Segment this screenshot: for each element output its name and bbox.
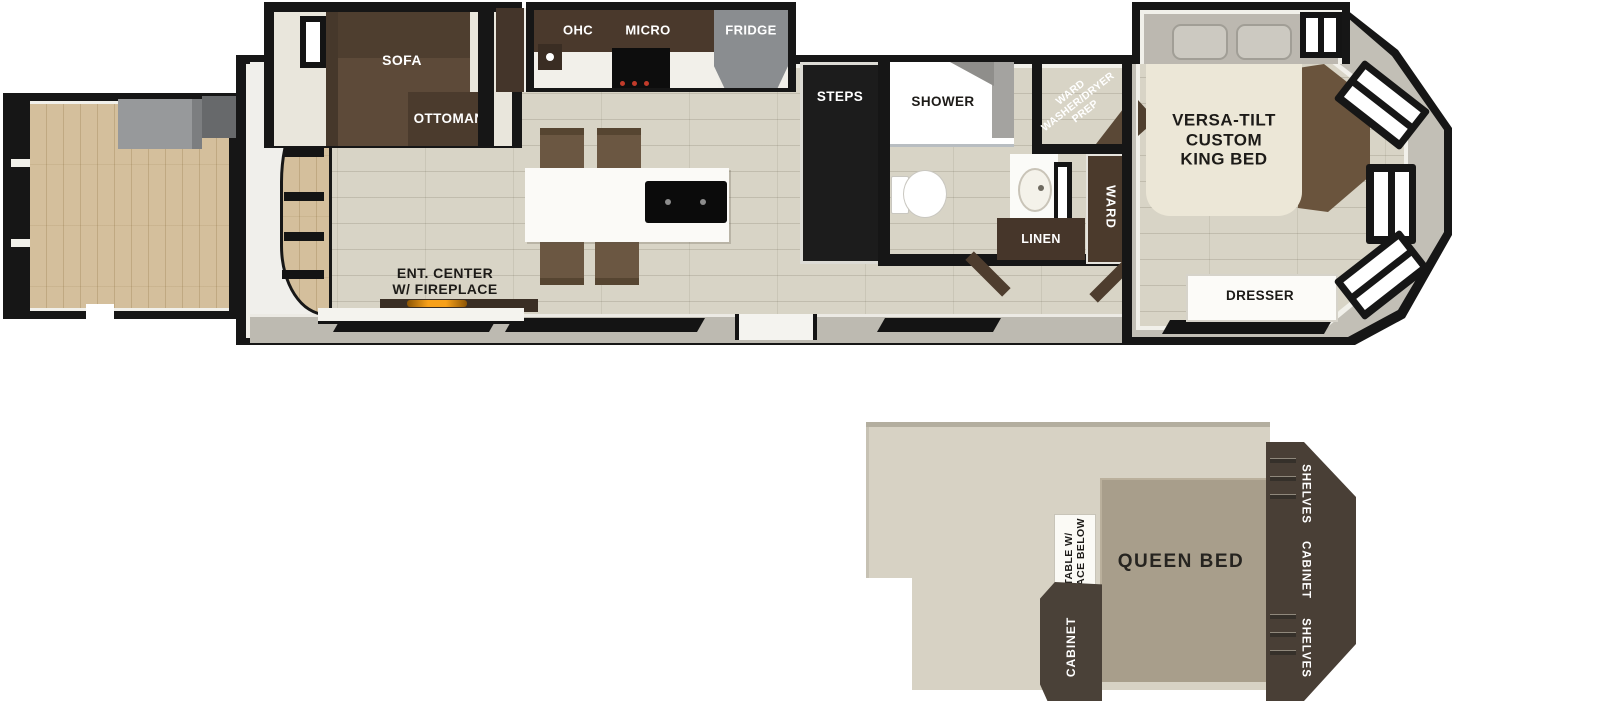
deck-rail-post <box>11 101 30 159</box>
entry-shelf-bar <box>284 148 324 157</box>
deck-corner-step <box>202 96 236 138</box>
vanity-sink <box>1018 168 1052 212</box>
entertainment-shelf <box>318 308 524 324</box>
ottoman-label: OTTOMAN <box>414 111 485 127</box>
toilet-bowl <box>903 170 947 218</box>
king-bed-label: VERSA-TILT CUSTOM KING BED <box>1172 111 1276 170</box>
shelf-mark <box>1270 650 1296 655</box>
sofa-armrest <box>326 12 338 146</box>
shower-glass-line <box>890 144 1014 147</box>
loft-queen-bed <box>1100 478 1270 682</box>
shelf-mark <box>1270 632 1296 637</box>
sofa-label: SOFA <box>382 52 422 68</box>
window <box>1162 320 1332 334</box>
king-bed-label-line3: KING BED <box>1172 150 1276 170</box>
shelf-mark <box>1270 614 1296 619</box>
ohc-label: OHC <box>563 24 593 39</box>
deck-bench <box>118 99 202 149</box>
island-sink <box>645 181 727 223</box>
wdp-wall <box>1032 60 1042 152</box>
window-pane <box>306 22 320 62</box>
window-pane <box>1306 18 1318 52</box>
vanity-mirror <box>1054 162 1072 224</box>
entry-shelf-bar <box>284 232 324 241</box>
dining-chair <box>595 238 639 285</box>
appliance-knob <box>546 53 554 61</box>
steps-label: STEPS <box>817 89 863 105</box>
dining-chair <box>540 238 584 285</box>
entry-shelf-bar <box>284 192 324 201</box>
fireplace-flame <box>407 300 467 307</box>
loft-shelves-bottom-label: SHELVES <box>1298 618 1311 678</box>
deck-rail-post <box>11 247 30 311</box>
micro-label: MICRO <box>625 24 670 39</box>
window-pane <box>1395 172 1409 236</box>
ent-center-label-line1: ENT. CENTER <box>392 265 497 281</box>
sink-drain <box>665 199 671 205</box>
entry-door-opening <box>735 314 817 340</box>
loft-shelves-top-label: SHELVES <box>1298 464 1311 524</box>
burner-knob <box>644 81 649 86</box>
entry-shelf-bar <box>282 270 324 279</box>
window <box>877 318 1001 332</box>
cap-window-middle <box>1366 164 1416 244</box>
pillow <box>1236 24 1292 60</box>
ward-label: WARD <box>1103 185 1118 229</box>
shower-wall-gray <box>992 62 1014 138</box>
floorplan-canvas: SOFA OTTOMAN OHC MICRO FRIDGE ENT. CENTE… <box>0 0 1600 701</box>
pillow <box>1172 24 1228 60</box>
pantry-cabinet <box>496 8 527 92</box>
loft-cabinet-right-label: CABINET <box>1298 541 1311 599</box>
window-pane <box>1374 172 1388 236</box>
window <box>505 318 705 332</box>
burner-knob <box>632 81 637 86</box>
mirror-pane <box>1058 167 1067 219</box>
queen-bed-label: QUEEN BED <box>1118 551 1244 573</box>
linen-label: LINEN <box>1021 232 1061 246</box>
sink-drain <box>700 199 706 205</box>
bath-wall <box>878 60 890 258</box>
cooktop <box>612 48 670 88</box>
dresser-label: DRESSER <box>1226 288 1294 304</box>
interior-wall <box>478 2 494 148</box>
shower-label: SHOWER <box>911 94 974 110</box>
counter-appliance <box>538 44 562 70</box>
window-pane <box>1324 18 1336 52</box>
king-bed-label-line2: CUSTOM <box>1172 130 1276 150</box>
fridge-label: FRIDGE <box>725 24 777 39</box>
deck-gate-opening <box>86 304 114 319</box>
faucet <box>1038 185 1044 191</box>
shelf-mark <box>1270 494 1296 499</box>
shelf-mark <box>1270 458 1296 463</box>
wdp-wall <box>1032 144 1132 154</box>
king-bed-label-line1: VERSA-TILT <box>1172 111 1276 131</box>
ent-center-label-line2: W/ FIREPLACE <box>392 281 497 297</box>
loft-cabinet-lower-label: CABINET <box>1065 617 1079 677</box>
shelf-mark <box>1270 476 1296 481</box>
ent-center-label: ENT. CENTER W/ FIREPLACE <box>392 265 497 297</box>
deck-rail-post <box>11 167 30 239</box>
burner-knob <box>620 81 625 86</box>
slideout-window <box>1300 12 1342 58</box>
